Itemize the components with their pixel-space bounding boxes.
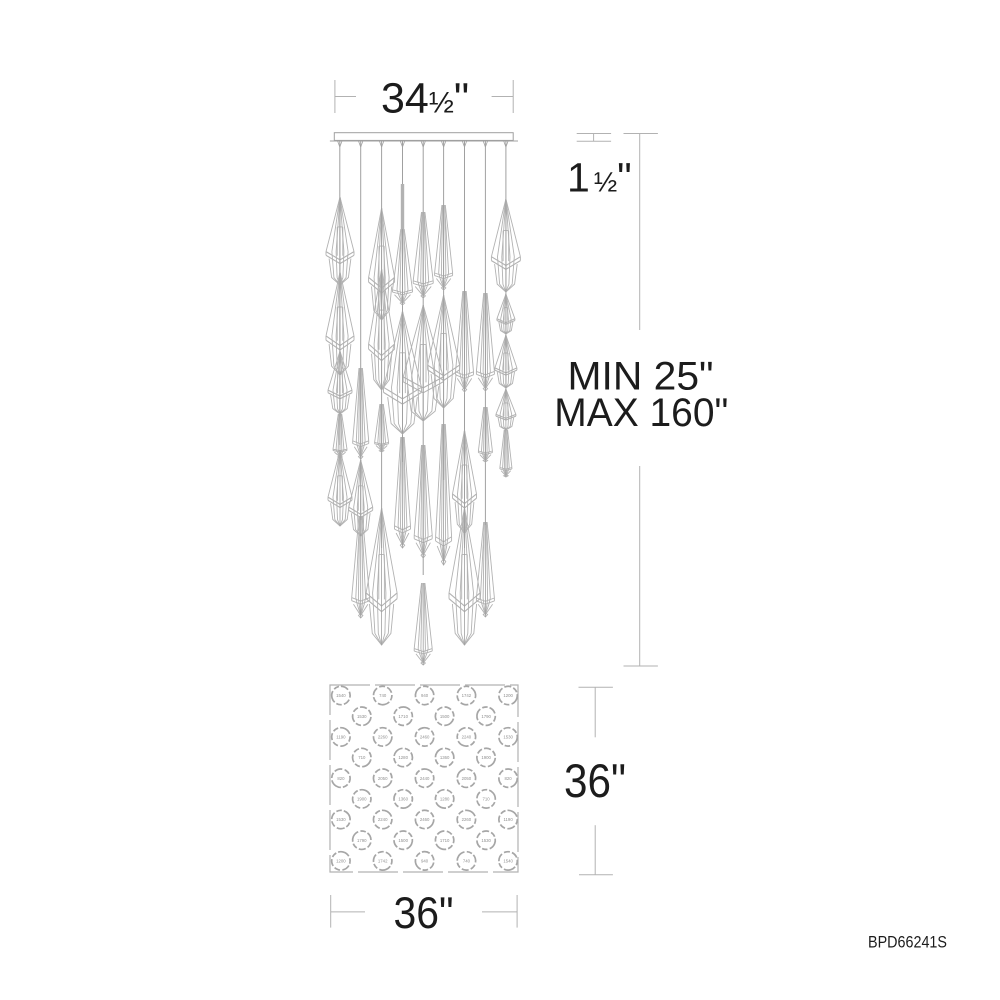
svg-text:34½": 34½" (381, 75, 469, 123)
svg-text:2460: 2460 (420, 817, 430, 822)
svg-text:1280: 1280 (398, 755, 408, 760)
svg-text:1190: 1190 (336, 735, 346, 740)
svg-text:1360: 1360 (398, 797, 408, 802)
svg-text:1742: 1742 (378, 859, 388, 864)
svg-text:1710: 1710 (398, 714, 408, 719)
svg-text:2240: 2240 (378, 817, 388, 822)
svg-text:1500: 1500 (440, 714, 450, 719)
svg-text:740: 740 (463, 859, 471, 864)
svg-text:940: 940 (421, 693, 429, 698)
svg-text:1360: 1360 (440, 755, 450, 760)
svg-text:1790: 1790 (481, 714, 491, 719)
svg-text:1710: 1710 (440, 838, 450, 843)
svg-text:2050: 2050 (378, 776, 388, 781)
svg-text:2460: 2460 (420, 735, 430, 740)
svg-text:1540: 1540 (336, 693, 346, 698)
svg-text:820: 820 (337, 776, 345, 781)
svg-text:1530: 1530 (481, 838, 491, 843)
svg-text:1500: 1500 (398, 838, 408, 843)
svg-text:1900: 1900 (481, 755, 491, 760)
svg-text:2260: 2260 (378, 735, 388, 740)
svg-text:820: 820 (505, 776, 513, 781)
svg-text:2260: 2260 (462, 817, 472, 822)
svg-text:1190: 1190 (503, 817, 513, 822)
svg-text:1530: 1530 (357, 714, 367, 719)
svg-text:1790: 1790 (357, 838, 367, 843)
svg-text:2050: 2050 (462, 776, 472, 781)
svg-text:1280: 1280 (440, 797, 450, 802)
svg-text:2440: 2440 (420, 776, 430, 781)
svg-text:710: 710 (483, 797, 491, 802)
svg-text:1530: 1530 (336, 817, 346, 822)
svg-text:1200: 1200 (336, 859, 346, 864)
svg-text:36": 36" (394, 889, 454, 938)
svg-text:740: 740 (379, 693, 387, 698)
svg-text:MAX 160": MAX 160" (554, 391, 728, 435)
svg-text:36": 36" (564, 754, 626, 807)
svg-text:1530: 1530 (503, 735, 513, 740)
svg-text:1742: 1742 (462, 693, 472, 698)
svg-text:2240: 2240 (462, 735, 472, 740)
svg-text:1900: 1900 (357, 797, 367, 802)
svg-text:BPD66241S: BPD66241S (868, 934, 947, 952)
svg-text:710: 710 (358, 755, 366, 760)
svg-text:1200: 1200 (503, 693, 513, 698)
svg-text:940: 940 (421, 859, 429, 864)
svg-text:1540: 1540 (503, 859, 513, 864)
